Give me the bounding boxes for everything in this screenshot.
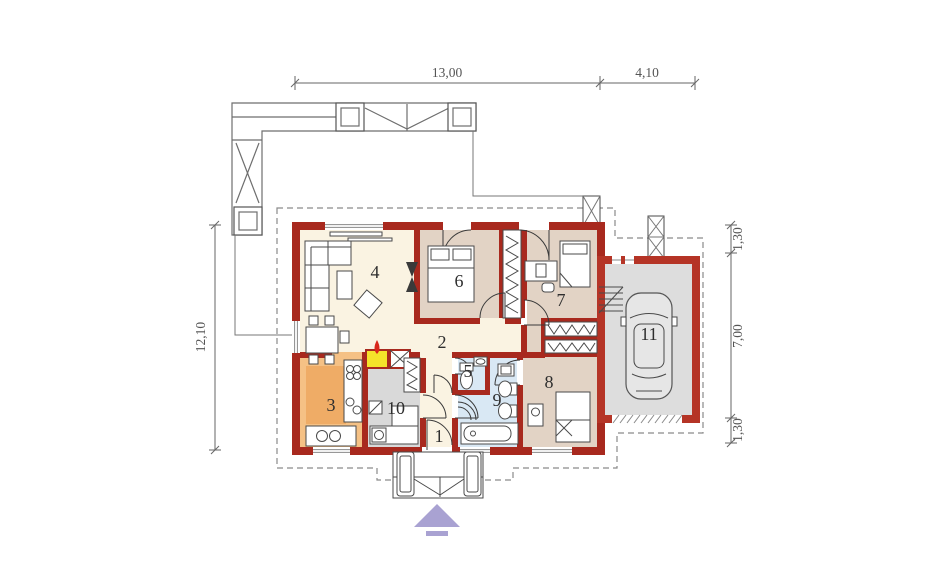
single-bed xyxy=(560,241,590,287)
washbasin xyxy=(474,357,487,366)
dim-label-right-3: 1,30 xyxy=(730,418,745,442)
bed xyxy=(556,392,590,442)
window xyxy=(325,222,383,230)
window xyxy=(612,256,621,264)
dim-label-left: 12,10 xyxy=(193,322,208,353)
window xyxy=(625,256,634,264)
room-label-7: 7 xyxy=(557,290,566,310)
floor-plan: 13,00 4,10 12,10 1,30 7,00 1,30 1 2 3 4 … xyxy=(0,0,940,587)
window xyxy=(532,447,572,455)
dim-label-top-1: 13,00 xyxy=(432,65,463,80)
floor-plan-canvas: 13,00 4,10 12,10 1,30 7,00 1,30 1 2 3 4 … xyxy=(0,0,940,587)
nightstand xyxy=(528,404,543,426)
room-label-5: 5 xyxy=(464,361,473,381)
room-label-10: 10 xyxy=(387,398,405,418)
garage-door xyxy=(612,415,682,423)
dimension-left: 12,10 xyxy=(193,221,221,454)
side-table xyxy=(337,271,352,299)
dimension-top: 13,00 4,10 xyxy=(291,65,699,90)
wardrobe xyxy=(545,340,597,353)
porch-column xyxy=(397,452,414,496)
pergola-post xyxy=(234,207,262,235)
terrace-edge xyxy=(473,131,583,196)
room-label-8: 8 xyxy=(545,372,554,392)
bathtub xyxy=(461,423,518,444)
dimension-right: 1,30 7,00 1,30 xyxy=(725,221,745,447)
room-label-3: 3 xyxy=(327,395,336,415)
dim-label-right-2: 7,00 xyxy=(730,324,745,348)
dim-label-top-2: 4,10 xyxy=(635,65,659,80)
double-bed xyxy=(428,246,474,302)
porch xyxy=(393,452,483,498)
room-label-4: 4 xyxy=(371,262,380,282)
porch-column xyxy=(464,452,481,496)
pergola-post xyxy=(336,103,364,131)
pergola-post xyxy=(448,103,476,131)
entrance-arrow-icon xyxy=(414,504,460,536)
chimney xyxy=(648,216,664,258)
window xyxy=(292,321,300,353)
chimney xyxy=(583,196,600,226)
wardrobe xyxy=(545,322,597,336)
washing-machine xyxy=(498,364,514,376)
room-label-6: 6 xyxy=(455,271,464,291)
window xyxy=(313,447,350,455)
room-label-9: 9 xyxy=(493,390,502,410)
room-label-1: 1 xyxy=(435,426,444,446)
room-label-11: 11 xyxy=(640,324,657,344)
wardrobe xyxy=(404,358,420,392)
room-label-2: 2 xyxy=(438,332,447,352)
car-icon xyxy=(621,293,677,399)
dim-label-right-1: 1,30 xyxy=(730,227,745,251)
shelf xyxy=(330,232,382,236)
terrace-edge xyxy=(235,235,292,335)
wardrobe xyxy=(503,230,521,318)
shelf xyxy=(348,238,392,241)
